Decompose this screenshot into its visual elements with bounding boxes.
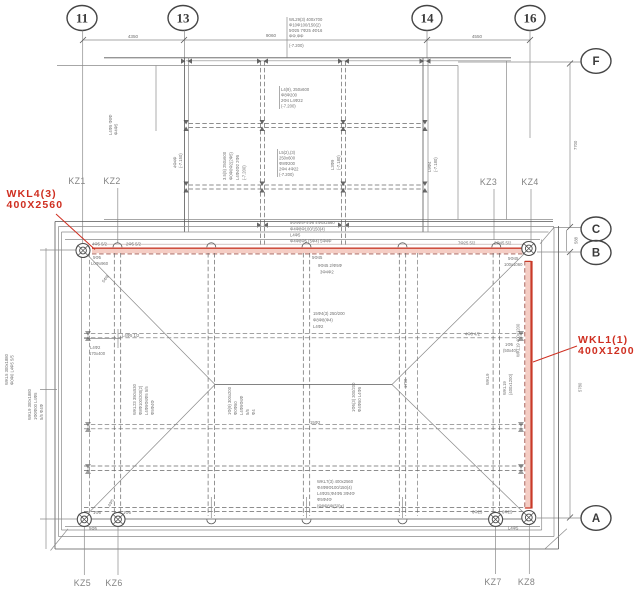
svg-text:Φ0Φ0Φ2(2Φ5): Φ0Φ0Φ2(2Φ5)	[229, 152, 234, 180]
svg-text:5Φ25 7Φ25 4Φ16: 5Φ25 7Φ25 4Φ16	[289, 28, 323, 33]
svg-text:L4Φ2: L4Φ2	[313, 324, 324, 329]
svg-text:5Φ4Φ5+4Φ8 4Φ0x2560: 5Φ4Φ5+4Φ8 4Φ0x2560	[290, 220, 335, 225]
svg-text:Φ4: Φ4	[251, 409, 256, 415]
svg-text:Φ5Φ4Φ: Φ5Φ4Φ	[317, 497, 332, 502]
svg-text:KZ2: KZ2	[103, 176, 120, 186]
svg-text:ΦΦ.ΦΦ: ΦΦ.ΦΦ	[289, 34, 304, 39]
svg-text:F: F	[592, 56, 599, 68]
svg-text:4Φ5 5/2: 4Φ5 5/2	[92, 242, 108, 247]
svg-text:1Φ5(3) 300/200: 1Φ5(3) 300/200	[351, 382, 356, 412]
svg-text:11: 11	[76, 11, 88, 26]
svg-text:250x600: 250x600	[279, 156, 296, 161]
svg-text:L4Φ4Φ2 2Φ5: L4Φ4Φ2 2Φ5	[235, 154, 240, 180]
svg-text:400X2560: 400X2560	[7, 199, 64, 211]
svg-text:KZ5: KZ5	[74, 578, 91, 588]
svg-text:(-7.180): (-7.180)	[336, 155, 341, 170]
svg-text:KZ7: KZ7	[484, 577, 501, 587]
svg-text:B: B	[592, 248, 600, 260]
svg-text:(-7.200): (-7.200)	[242, 165, 247, 180]
svg-text:WKL9: WKL9	[485, 373, 490, 385]
svg-text:WL29(3) 400x700: WL29(3) 400x700	[289, 17, 323, 22]
svg-text:L4Φ5 Φ0Φ: L4Φ5 Φ0Φ	[108, 114, 113, 135]
svg-text:9060: 9060	[266, 33, 277, 38]
svg-text:(400x1200): (400x1200)	[508, 373, 513, 395]
svg-text:A: A	[592, 513, 600, 525]
svg-text:WKL5 300x1880: WKL5 300x1880	[4, 353, 9, 385]
svg-text:5/5: 5/5	[245, 409, 250, 415]
svg-text:(-7.200): (-7.200)	[289, 43, 304, 48]
svg-text:WKL7(3) 400x2560: WKL7(3) 400x2560	[317, 479, 354, 484]
svg-text:15Φ4(3) 250/200: 15Φ4(3) 250/200	[313, 311, 345, 316]
svg-text:L4Φ2: L4Φ2	[90, 345, 101, 350]
svg-text:KZ3: KZ3	[480, 177, 497, 187]
svg-text:L0Φx960: L0Φx960	[91, 261, 109, 266]
svg-text:1Φ5: 1Φ5	[123, 510, 132, 515]
svg-text:Φ4Φ8Φ100/150(4): Φ4Φ8Φ100/150(4)	[290, 227, 326, 232]
svg-text:15Φ2: 15Φ2	[310, 420, 321, 425]
svg-text:L4Φ5: L4Φ5	[290, 233, 301, 238]
svg-text:L4(9), 250x600: L4(9), 250x600	[281, 87, 310, 92]
svg-text:13: 13	[177, 11, 191, 26]
svg-text:Φ8Φ200: Φ8Φ200	[279, 161, 296, 166]
svg-text:Φ4Φ8Φ5 (5Φ4) 5Φ4Φ: Φ4Φ8Φ5 (5Φ4) 5Φ4Φ	[290, 239, 332, 244]
svg-text:Φ8Φ8(Φ4): Φ8Φ8(Φ4)	[313, 318, 333, 323]
svg-text:Φ5Φ4Φ: Φ5Φ4Φ	[150, 400, 155, 415]
svg-text:L4Φ5 1/2: L4Φ5 1/2	[122, 333, 140, 338]
svg-text:9Φ45 2/Φ5Φ: 9Φ45 2/Φ5Φ	[318, 263, 343, 268]
svg-text:(-7.150): (-7.150)	[178, 153, 183, 168]
svg-text:7700: 7700	[573, 140, 578, 150]
svg-text:170x400: 170x400	[89, 351, 106, 356]
svg-text:5Φ45: 5Φ45	[508, 256, 519, 261]
svg-text:100x1060: 100x1060	[504, 262, 523, 267]
svg-text:3Φ4Φ2: 3Φ4Φ2	[320, 270, 334, 275]
svg-text:3.5(5) 250x600: 3.5(5) 250x600	[222, 151, 227, 180]
svg-text:2Φ45 5/2: 2Φ45 5/2	[494, 241, 512, 246]
svg-text:5Φ5: 5Φ5	[89, 526, 98, 531]
svg-text:7Φ25 5/2: 7Φ25 5/2	[458, 241, 476, 246]
svg-text:6Φ25: 6Φ25	[502, 510, 513, 515]
svg-text:WKL19: WKL19	[502, 381, 507, 395]
svg-text:588: 588	[574, 236, 579, 244]
svg-text:L3Φ9: L3Φ9	[330, 159, 335, 170]
svg-text:5Φ5: 5Φ5	[93, 255, 102, 260]
svg-text:C: C	[592, 224, 600, 236]
svg-text:1Φ5: 1Φ5	[93, 510, 102, 515]
svg-text:4550: 4550	[472, 34, 483, 39]
svg-text:2Φ5 5/2: 2Φ5 5/2	[126, 242, 142, 247]
svg-text:400X1200: 400X1200	[578, 345, 635, 357]
svg-text:L5(2),(3): L5(2),(3)	[279, 150, 296, 155]
svg-text:4350: 4350	[128, 34, 139, 39]
svg-text:Φ0Φ0 L4Φ5 5/5: Φ0Φ0 L4Φ5 5/5	[10, 355, 15, 385]
svg-text:L4Φ5Φ4Φ5 5/5: L4Φ5Φ4Φ5 5/5	[144, 386, 149, 415]
svg-text:1Φ0Φ00 L4Φ5: 1Φ0Φ00 L4Φ5	[33, 392, 38, 420]
svg-text:(-7.200): (-7.200)	[281, 104, 296, 109]
svg-text:(-7.200): (-7.200)	[279, 172, 294, 177]
svg-text:1790: 1790	[403, 378, 408, 388]
svg-text:L9Φ4: L9Φ4	[427, 161, 432, 172]
svg-text:5Φ45: 5Φ45	[312, 255, 323, 260]
svg-text:L4Φ5: L4Φ5	[508, 526, 519, 531]
svg-text:4Φ4Φ: 4Φ4Φ	[173, 156, 178, 168]
svg-text:4Φ0 4/2: 4Φ0 4/2	[465, 332, 481, 337]
svg-text:KZ8: KZ8	[518, 577, 535, 587]
svg-text:Φ10Φ100/150(2): Φ10Φ100/150(2)	[289, 23, 321, 28]
svg-text:14: 14	[421, 11, 435, 26]
svg-text:(50x40): (50x40)	[503, 348, 518, 353]
svg-text:2Φ4 L4Φ22: 2Φ4 L4Φ22	[281, 98, 303, 103]
svg-text:L4Φ5Φ4Φ: L4Φ5Φ4Φ	[239, 395, 244, 415]
svg-text:KZ4: KZ4	[521, 177, 538, 187]
svg-text:1Φ(9) 300x200: 1Φ(9) 300x200	[227, 386, 232, 415]
svg-text:Φ0Φ50: Φ0Φ50	[233, 401, 238, 415]
svg-text:6Φ25: 6Φ25	[472, 510, 483, 515]
svg-text:Φ4Φ50 L4Φ5: Φ4Φ50 L4Φ5	[357, 386, 362, 412]
svg-text:5/5 Φ4Φ: 5/5 Φ4Φ	[39, 403, 44, 420]
svg-text:1Φ5: 1Φ5	[505, 342, 514, 347]
svg-text:KZ6: KZ6	[105, 578, 122, 588]
svg-text:WKL9 300x1880: WKL9 300x1880	[27, 388, 32, 420]
svg-text:WKL23 350x530: WKL23 350x530	[132, 383, 137, 415]
svg-text:Φ4Φ8Φ100/150(4): Φ4Φ8Φ100/150(4)	[317, 485, 353, 490]
svg-text:(Φ8Φ8Φ(50)x): (Φ8Φ8Φ(50)x)	[317, 504, 345, 509]
svg-text:Φ4Φ5: Φ4Φ5	[114, 123, 119, 135]
svg-text:Φ8Φ100/200(2): Φ8Φ100/200(2)	[138, 385, 143, 415]
svg-text:16: 16	[524, 11, 538, 26]
svg-text:2Φ4 4Φ22: 2Φ4 4Φ22	[279, 167, 299, 172]
svg-text:Φ8Φ200: Φ8Φ200	[281, 93, 298, 98]
svg-text:5780: 5780	[578, 382, 583, 392]
svg-text:(-7.180): (-7.180)	[433, 157, 438, 172]
svg-text:KZ1: KZ1	[68, 176, 85, 186]
svg-text:L4Φ25;Φ4Φ5 3Φ4Φ: L4Φ25;Φ4Φ5 3Φ4Φ	[317, 491, 355, 496]
